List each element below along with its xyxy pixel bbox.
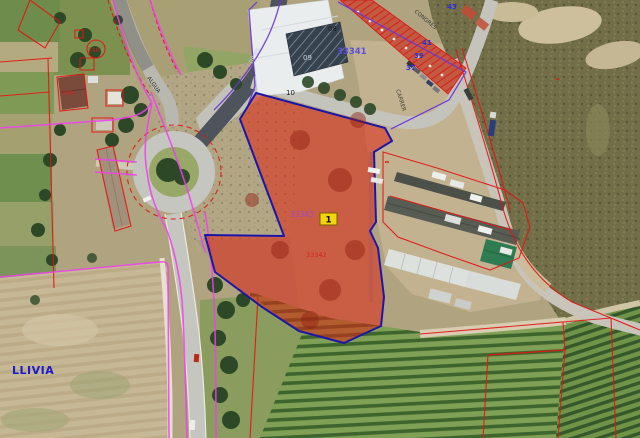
building-label-08: 08 bbox=[328, 25, 337, 33]
house-number-43: 43 bbox=[447, 3, 457, 11]
house-number-37: 37 bbox=[406, 64, 416, 72]
plot-label-240: 240 bbox=[88, 47, 100, 54]
shed bbox=[108, 92, 122, 104]
polygon-code-33343: 33343 bbox=[290, 210, 314, 219]
map-canvas[interactable]: LLIVIA 33341 33343 33342 08 09 10 43 41 … bbox=[0, 0, 640, 438]
selected-parcel-marker[interactable]: 1 bbox=[320, 213, 337, 226]
car-red bbox=[194, 354, 200, 362]
house-number-41: 41 bbox=[422, 39, 432, 47]
field-top-corner bbox=[0, 0, 60, 42]
polygon-code-33342: 33342 bbox=[306, 251, 327, 259]
map-viewport[interactable]: LLIVIA 33341 33343 33342 08 09 10 43 41 … bbox=[0, 0, 640, 438]
building-label-09: 09 bbox=[303, 54, 312, 62]
plot-label-008: 008 bbox=[62, 90, 74, 97]
house-number-39: 39 bbox=[414, 52, 424, 60]
marker-number: 1 bbox=[325, 216, 331, 226]
town-label: LLIVIA bbox=[12, 364, 54, 377]
building-label-10: 10 bbox=[286, 89, 295, 97]
van-white bbox=[190, 420, 196, 430]
polygon-code-33341: 33341 bbox=[337, 47, 367, 57]
